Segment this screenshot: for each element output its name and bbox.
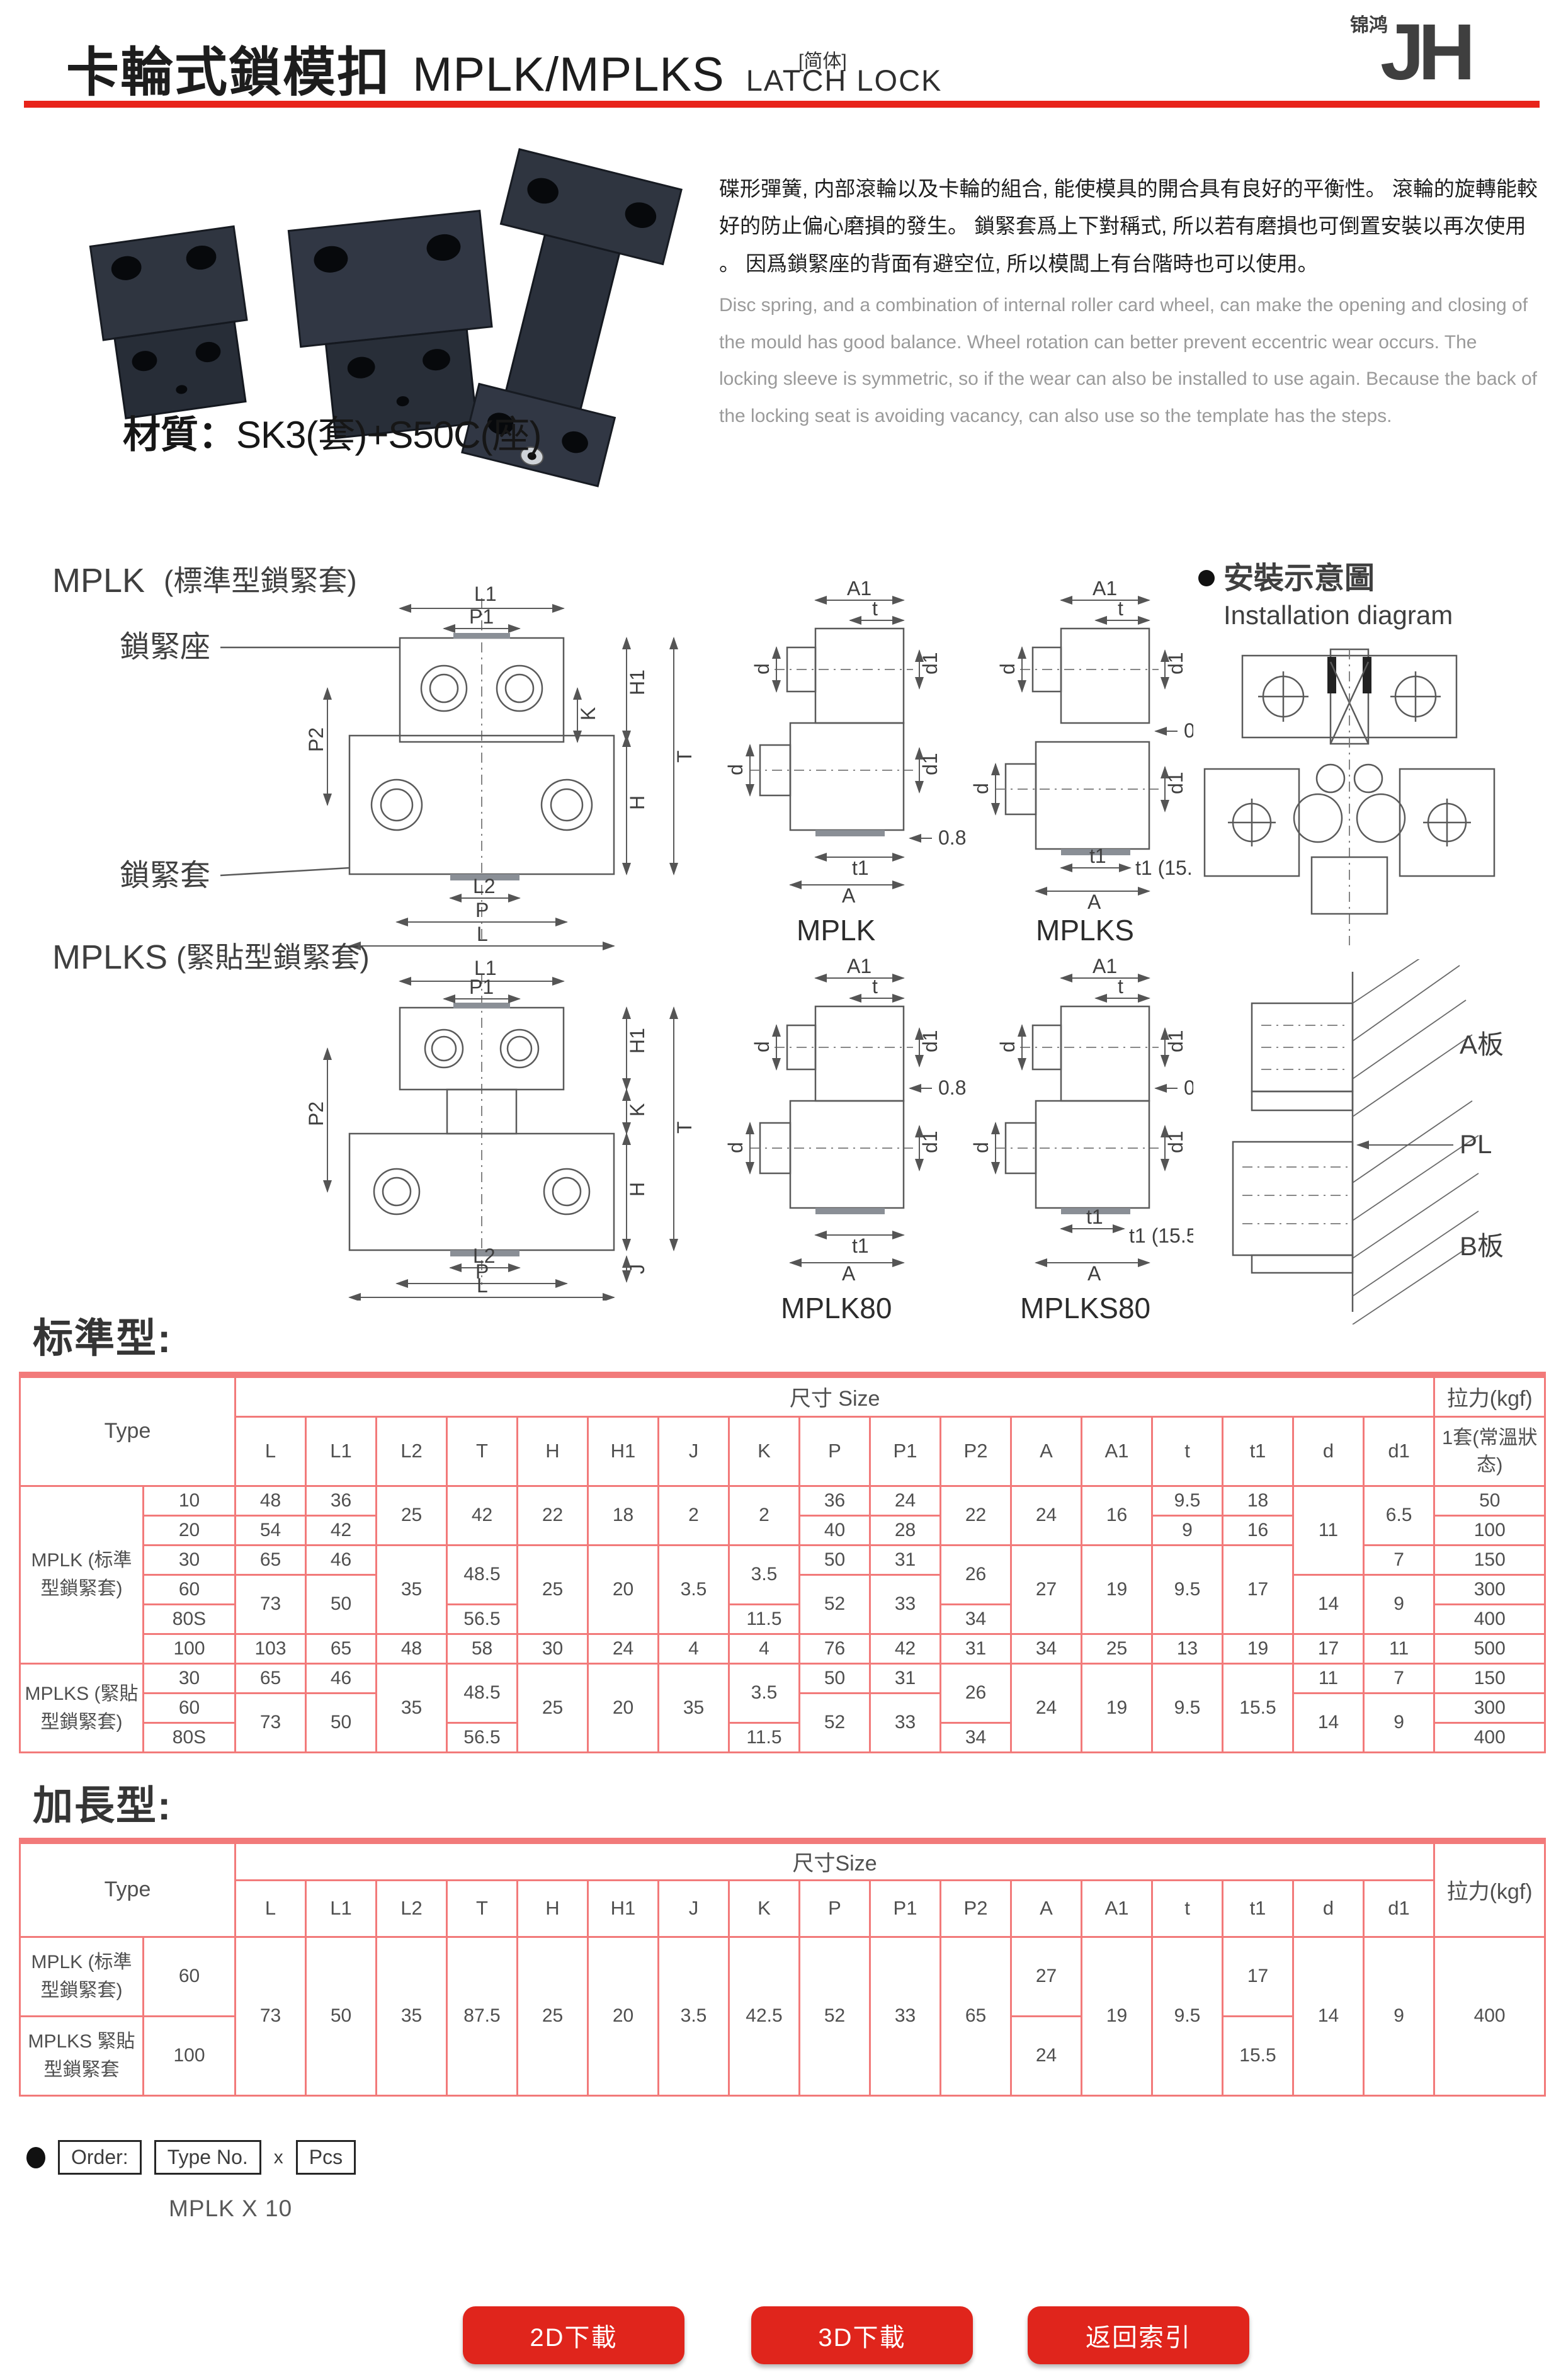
dim-label: A (842, 1262, 856, 1285)
col-header: T (447, 1416, 518, 1486)
table-header-row: L L1 L2 T H H1 J K P P1 P2 A A1 t t1 d d… (20, 1416, 1545, 1486)
col-header: d (1293, 1880, 1364, 1937)
cell: 35 (377, 1663, 447, 1752)
table-row: MPLKS (緊貼型鎖緊套) 30 65 46 35 48.5 25 20 35… (20, 1663, 1545, 1693)
cell: 150 (1434, 1545, 1545, 1574)
dim-label: d (751, 1041, 773, 1052)
cell: 400 (1434, 1937, 1545, 2095)
extended-table-heading: 加長型: (33, 1774, 172, 1831)
cell: 11 (1293, 1663, 1364, 1693)
cell: 300 (1434, 1574, 1545, 1604)
col-header: t (1152, 1880, 1223, 1937)
order-times: x (274, 2147, 283, 2168)
cell: 11.5 (729, 1604, 800, 1634)
cell: 60 (144, 1574, 236, 1604)
col-header: A1 (1082, 1416, 1152, 1486)
cell: 36 (306, 1486, 377, 1515)
cell: 11 (1364, 1634, 1434, 1663)
cell: 46 (306, 1663, 377, 1693)
dim-label: t (1118, 975, 1123, 998)
dim-label: d (724, 1142, 747, 1153)
col-header: J (659, 1416, 729, 1486)
cell: 52 (800, 1574, 870, 1634)
table-header-row: Type 尺寸Size 拉力(kgf) (20, 1841, 1545, 1880)
col-header: d1 (1364, 1880, 1434, 1937)
jh-logo: 锦鸿 JH (1349, 8, 1494, 89)
dim-label: t (1118, 597, 1123, 620)
dim-label: t1 (852, 857, 869, 879)
back-to-index-button[interactable]: 返回索引 (1028, 2306, 1249, 2364)
cell: 19 (1082, 1937, 1152, 2095)
drawing-subtitle: (標準型鎖緊套) (164, 564, 357, 597)
dim-label: d (970, 783, 992, 794)
col-header: L2 (377, 1416, 447, 1486)
cell: 18 (1223, 1486, 1293, 1515)
dim-label: P2 (305, 727, 327, 752)
bullet-icon (1198, 570, 1215, 586)
dim-label: d (724, 764, 747, 775)
cell: 34 (941, 1722, 1011, 1752)
col-header: L1 (306, 1880, 377, 1937)
cell: 103 (236, 1634, 306, 1663)
cell: 73 (236, 1937, 306, 2095)
pl-label: PL (1460, 1129, 1492, 1159)
cell: 52 (800, 1937, 870, 2095)
cell: 65 (306, 1634, 377, 1663)
cell: 9.5 (1152, 1486, 1223, 1515)
cell: 87.5 (447, 1937, 518, 2095)
cell: 2 (659, 1486, 729, 1545)
cell: 9 (1364, 1693, 1434, 1752)
cell: 24 (1011, 1663, 1082, 1752)
dim-label: 0.8 (938, 1076, 966, 1099)
dim-label: H1 (626, 1028, 649, 1054)
cell: 150 (1434, 1663, 1545, 1693)
type-header: Type (20, 1841, 236, 1937)
col-header: A (1011, 1880, 1082, 1937)
dim-label: P (475, 899, 489, 921)
cell: MPLK (标準型鎖緊套) (20, 1486, 144, 1663)
col-header: A (1011, 1416, 1082, 1486)
dim-label: H1 (626, 669, 649, 695)
pull-header: 拉力(kgf) (1434, 1841, 1545, 1937)
extended-size-table: Type 尺寸Size 拉力(kgf) L L1 L2 T H H1 J K P… (19, 1838, 1546, 2097)
cell: 14 (1293, 1574, 1364, 1634)
cell: 48.5 (447, 1545, 518, 1604)
dim-label: t1 (1086, 1205, 1103, 1228)
col-header: P (800, 1416, 870, 1486)
dim-label: A1 (847, 581, 871, 600)
plate-a-label: A板 (1460, 1030, 1504, 1059)
dim-label: P2 (305, 1102, 327, 1126)
mplks-front-drawing: MPLKS (緊貼型鎖緊套) L1 P1 P2 H1 K T H J L2 P … (41, 932, 696, 1301)
cell: 100 (1434, 1515, 1545, 1545)
sleeve-label: 鎖緊套 (120, 859, 210, 892)
cell: 50 (800, 1545, 870, 1574)
dim-label: d (996, 1041, 1019, 1052)
cell: 25 (1082, 1634, 1152, 1663)
cell: 300 (1434, 1693, 1545, 1722)
cell: 42 (870, 1634, 941, 1663)
material-label: 材質： (123, 404, 236, 459)
cell: 36 (800, 1486, 870, 1515)
cell: 20 (588, 1663, 659, 1752)
cell: 34 (1011, 1634, 1082, 1663)
bullet-icon (26, 2147, 45, 2168)
dim-label: d (970, 1142, 992, 1153)
cell: 48 (377, 1634, 447, 1663)
col-header: L1 (306, 1416, 377, 1486)
cell: 24 (870, 1486, 941, 1515)
col-header: L (236, 1880, 306, 1937)
technical-drawings: MPLK (標準型鎖緊套) L1 P1 P2 K H1 H T L2 P L 鎖… (0, 547, 1561, 1334)
cell: MPLKS 緊貼型鎖緊套 (20, 2016, 144, 2095)
col-header: t1 (1223, 1416, 1293, 1486)
col-header: P2 (941, 1880, 1011, 1937)
dim-label: t (872, 975, 878, 998)
dim-label: A (1087, 1262, 1101, 1285)
cell: 11 (1293, 1486, 1364, 1574)
cell: 25 (518, 1545, 588, 1634)
type-header: Type (20, 1375, 236, 1486)
cell: 25 (377, 1486, 447, 1545)
drawing-caption: MPLKS80 (1020, 1292, 1150, 1324)
cell: 50 (306, 1574, 377, 1634)
dim-label: K (577, 707, 599, 720)
install-title-zh: 安裝示意圖 (1223, 562, 1375, 595)
dim-label: A1 (1093, 581, 1117, 600)
cell: 46 (306, 1545, 377, 1574)
col-header: A1 (1082, 1880, 1152, 1937)
cell: 48.5 (447, 1663, 518, 1722)
cell: 9.5 (1152, 1937, 1223, 2095)
cell: 31 (870, 1545, 941, 1574)
cell: MPLKS (緊貼型鎖緊套) (20, 1663, 144, 1752)
cell: 17 (1293, 1634, 1364, 1663)
cell: 60 (144, 1937, 236, 2016)
cell: 15.5 (1223, 1663, 1293, 1752)
drawing-caption: MPLK80 (781, 1292, 892, 1324)
cell: 22 (941, 1486, 1011, 1545)
cell: 3.5 (659, 1545, 729, 1634)
dim-label: A (1087, 891, 1101, 913)
cell: 58 (447, 1634, 518, 1663)
cell: 18 (588, 1486, 659, 1545)
cell: 40 (800, 1515, 870, 1545)
cell: 80S (144, 1604, 236, 1634)
order-type-no: Type No. (154, 2140, 261, 2175)
logo-jh-text: JH (1380, 8, 1470, 89)
cell: 6.5 (1364, 1486, 1434, 1545)
dim-label: J (626, 1264, 649, 1274)
col-header: H1 (588, 1880, 659, 1937)
dim-label: d1 (1164, 772, 1187, 794)
cell: 35 (659, 1663, 729, 1752)
mplk-front-drawing: MPLK (標準型鎖緊套) L1 P1 P2 K H1 H T L2 P L 鎖… (41, 553, 696, 956)
cell: 26 (941, 1663, 1011, 1722)
dim-label: t (872, 597, 878, 620)
cell: 50 (1434, 1486, 1545, 1515)
plate-section-drawing: A板 PL B板 (1189, 959, 1545, 1324)
cell: 80S (144, 1722, 236, 1752)
dim-label: 0.8 (938, 826, 966, 849)
cell: 3.5 (729, 1545, 800, 1604)
drawing-caption: MPLK (797, 914, 876, 947)
standard-size-table: Type 尺寸 Size 拉力(kgf) L L1 L2 T H H1 J K … (19, 1372, 1546, 1753)
description: 碟形彈簧, 内部滾輪以及卡輪的組合, 能使模具的開合具有良好的平衡性。 滾輪的旋… (719, 170, 1538, 435)
cell: MPLK (标準型鎖緊套) (20, 1937, 144, 2016)
size-header: 尺寸Size (236, 1841, 1434, 1880)
size-header: 尺寸 Size (236, 1375, 1434, 1416)
cell: 3.5 (659, 1937, 729, 2095)
dim-label: t1 (15.5) (1129, 1224, 1193, 1247)
col-header: K (729, 1880, 800, 1937)
cell: 400 (1434, 1722, 1545, 1752)
dim-label: d1 (1164, 1130, 1187, 1153)
seat-label: 鎖緊座 (120, 630, 210, 664)
order-label: Order: (58, 2140, 142, 2175)
cell: 16 (1223, 1515, 1293, 1545)
cell: 65 (236, 1545, 306, 1574)
pull-subheader: 1套(常溫狀态) (1434, 1416, 1545, 1486)
drawing-caption: MPLKS (1036, 914, 1134, 947)
dim-label: d1 (919, 753, 941, 775)
cell: 20 (588, 1937, 659, 2095)
cell: 20 (144, 1515, 236, 1545)
download-2d-button[interactable]: 2D下載 (463, 2306, 684, 2364)
cell: 13 (1152, 1634, 1223, 1663)
dim-label: A (842, 884, 856, 907)
cell: 25 (518, 1937, 588, 2095)
pull-header: 拉力(kgf) (1434, 1375, 1545, 1416)
col-header: t1 (1223, 1880, 1293, 1937)
cell: 17 (1223, 1545, 1293, 1634)
cell: 65 (941, 1937, 1011, 2095)
dim-label: L (477, 1274, 488, 1297)
cell: 16 (1082, 1486, 1152, 1545)
cell: 50 (800, 1663, 870, 1693)
cell: 33 (870, 1574, 941, 1634)
dim-label: A1 (1093, 955, 1117, 977)
cell: 9 (1152, 1515, 1223, 1545)
col-header: H (518, 1880, 588, 1937)
cell: 26 (941, 1545, 1011, 1604)
col-header: K (729, 1416, 800, 1486)
dim-label: d1 (919, 652, 941, 675)
title-chinese: 卡輪式鎖模扣 (66, 30, 391, 106)
cell: 100 (144, 1634, 236, 1663)
cell: 500 (1434, 1634, 1545, 1663)
cell: 60 (144, 1693, 236, 1722)
table-row: MPLK (标準型鎖緊套) 60 73 50 35 87.5 25 20 3.5… (20, 1937, 1545, 2016)
cell: 7 (1364, 1663, 1434, 1693)
cell: 2 (729, 1486, 800, 1545)
col-header: P1 (870, 1880, 941, 1937)
cell: 30 (518, 1634, 588, 1663)
cell: 15.5 (1223, 2016, 1293, 2095)
cell: 25 (518, 1663, 588, 1752)
cell: 56.5 (447, 1604, 518, 1634)
cell: 3.5 (729, 1663, 800, 1722)
cell: 42 (306, 1515, 377, 1545)
col-header: L (236, 1416, 306, 1486)
col-header: P2 (941, 1416, 1011, 1486)
description-chinese: 碟形彈簧, 内部滾輪以及卡輪的組合, 能使模具的開合具有良好的平衡性。 滾輪的旋… (719, 170, 1538, 282)
table-header-row: Type 尺寸 Size 拉力(kgf) (20, 1375, 1545, 1416)
cell: 19 (1082, 1545, 1152, 1634)
dim-label: P1 (469, 605, 494, 628)
cell: 50 (306, 1693, 377, 1752)
cell: 22 (518, 1486, 588, 1545)
cell: 65 (236, 1663, 306, 1693)
side-views-drawing: A1 t d d1 d d1 0.8 t1 A MPLK A1 t d d1 0… (696, 581, 1193, 1324)
order-info: Order: Type No. x Pcs (26, 2140, 356, 2175)
dim-label: L2 (473, 875, 496, 897)
cell: 17 (1223, 1937, 1293, 2016)
cell: 400 (1434, 1604, 1545, 1634)
install-title-en: Installation diagram (1223, 600, 1453, 630)
dim-label: t1 (15.5) (1135, 857, 1193, 879)
cell: 42 (447, 1486, 518, 1545)
col-header: P (800, 1880, 870, 1937)
cell: 9.5 (1152, 1545, 1223, 1634)
cell: 27 (1011, 1545, 1082, 1634)
dim-label: T (673, 750, 696, 763)
download-3d-button[interactable]: 3D下載 (751, 2306, 973, 2364)
drawing-subtitle: (緊貼型鎖緊套) (176, 941, 370, 974)
latch-part-small (90, 226, 258, 419)
cell: 9 (1364, 1937, 1434, 2095)
header-divider (24, 101, 1540, 108)
col-header: t (1152, 1416, 1223, 1486)
cell: 30 (144, 1545, 236, 1574)
cell: 54 (236, 1515, 306, 1545)
cell: 10 (144, 1486, 236, 1515)
title-model: MPLK/MPLKS (412, 47, 725, 102)
cell: 56.5 (447, 1722, 518, 1752)
cell: 42.5 (729, 1937, 800, 2095)
dim-label: K (626, 1103, 649, 1117)
cell: 48 (236, 1486, 306, 1515)
col-header: d (1293, 1416, 1364, 1486)
table-header-row: L L1 L2 T H H1 J K P P1 P2 A A1 t t1 d d… (20, 1880, 1545, 1937)
dim-label: d (996, 663, 1019, 675)
col-header: P1 (870, 1416, 941, 1486)
cell: 33 (870, 1937, 941, 2095)
cell: 50 (306, 1937, 377, 2095)
material-line: 材質： SK3(套)+S50C(座) (123, 404, 541, 459)
order-example: MPLK X 10 (169, 2195, 292, 2222)
cell: 19 (1082, 1663, 1152, 1752)
dim-label: d (751, 663, 773, 675)
dim-label: d1 (1164, 652, 1187, 675)
cell: 4 (729, 1634, 800, 1663)
cell: 9.5 (1152, 1663, 1223, 1752)
cell: 19 (1223, 1634, 1293, 1663)
cell: 7 (1364, 1545, 1434, 1574)
cell: 14 (1293, 1937, 1364, 2095)
col-header: H1 (588, 1416, 659, 1486)
cell: 73 (236, 1574, 306, 1634)
language-tag: [简体] (798, 45, 847, 73)
cell: 30 (144, 1663, 236, 1693)
dim-label: d1 (919, 1030, 941, 1052)
col-header: d1 (1364, 1416, 1434, 1486)
dim-label: A1 (847, 955, 871, 977)
cell: 73 (236, 1693, 306, 1752)
cell: 33 (870, 1693, 941, 1752)
cell: 24 (588, 1634, 659, 1663)
dim-label: H (626, 1182, 649, 1197)
order-pcs: Pcs (296, 2140, 356, 2175)
table-row: 100 103 65 48 58 30 24 4 4 76 42 31 34 2… (20, 1634, 1545, 1663)
cell: 31 (870, 1663, 941, 1693)
cell: 35 (377, 1545, 447, 1634)
dim-label: T (673, 1121, 696, 1134)
dim-label: t1 (852, 1234, 869, 1257)
dim-label: L1 (474, 583, 497, 605)
plate-b-label: B板 (1460, 1231, 1504, 1261)
cell: 34 (941, 1604, 1011, 1634)
material-value: SK3(套)+S50C(座) (236, 404, 541, 459)
installation-diagram: 安裝示意圖 Installation diagram (1189, 552, 1545, 961)
col-header: L2 (377, 1880, 447, 1937)
cell: 11.5 (729, 1722, 800, 1752)
cell: 52 (800, 1693, 870, 1752)
description-english: Disc spring, and a combination of intern… (719, 287, 1538, 435)
table-row: MPLK (标準型鎖緊套) 10 48 36 25 42 22 18 2 2 3… (20, 1486, 1545, 1515)
col-header: H (518, 1416, 588, 1486)
standard-table-heading: 标準型: (33, 1306, 172, 1364)
dim-label: d1 (1164, 1030, 1187, 1052)
drawing-title: MPLK (52, 562, 145, 600)
dim-label: t1 (1089, 845, 1106, 867)
cell: 9 (1364, 1574, 1434, 1634)
drawing-title: MPLKS (52, 938, 167, 976)
cell: 31 (941, 1634, 1011, 1663)
cell: 24 (1011, 1486, 1082, 1545)
cell: 4 (659, 1634, 729, 1663)
col-header: J (659, 1880, 729, 1937)
dim-label: P1 (469, 976, 494, 998)
cell: 24 (1011, 2016, 1082, 2095)
cell: 27 (1011, 1937, 1082, 2016)
cell: 76 (800, 1634, 870, 1663)
dim-label: d1 (919, 1130, 941, 1153)
dim-label: H (626, 795, 649, 810)
cell: 28 (870, 1515, 941, 1545)
cell: 14 (1293, 1693, 1364, 1752)
col-header: T (447, 1880, 518, 1937)
cell: 20 (588, 1545, 659, 1634)
cell: 35 (377, 1937, 447, 2095)
cell: 100 (144, 2016, 236, 2095)
